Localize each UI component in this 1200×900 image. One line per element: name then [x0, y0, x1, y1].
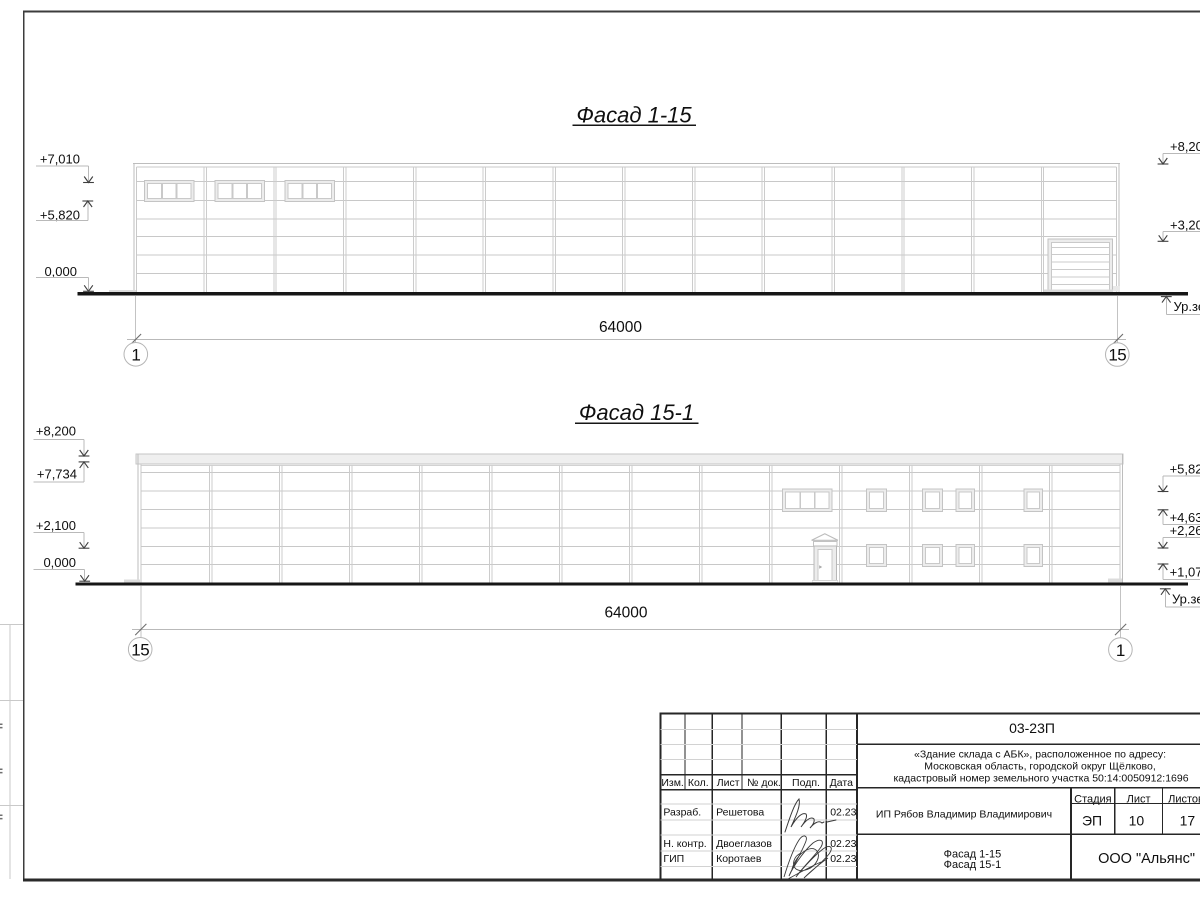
svg-text:ИП Рябов Владимир Владимирович: ИП Рябов Владимир Владимирович	[876, 809, 1052, 821]
svg-text:Лист: Лист	[1127, 793, 1151, 805]
svg-text:№ док.: № док.	[747, 777, 781, 789]
svg-text:Разраб.: Разраб.	[663, 807, 701, 819]
svg-text:02.23: 02.23	[830, 807, 856, 819]
svg-text:Решетова: Решетова	[716, 807, 764, 819]
svg-text:64000: 64000	[599, 319, 642, 336]
svg-text:+8,200: +8,200	[1170, 139, 1200, 154]
svg-text:Стадия: Стадия	[1074, 793, 1112, 805]
svg-text:15: 15	[131, 641, 149, 660]
svg-text:Ур.земли: Ур.земли	[1174, 299, 1200, 314]
svg-text:Изм.: Изм.	[661, 777, 684, 789]
svg-text:64000: 64000	[604, 605, 647, 622]
svg-text:Коротаев: Коротаев	[716, 853, 762, 865]
svg-text:17: 17	[1180, 812, 1196, 828]
svg-text:0,000: 0,000	[44, 264, 77, 279]
svg-text:02.23: 02.23	[830, 853, 856, 865]
svg-text:Н. контр.: Н. контр.	[663, 838, 706, 850]
svg-text:15: 15	[1108, 346, 1126, 365]
svg-text:«Здание склада с АБК», располо: «Здание склада с АБК», расположенное по …	[914, 748, 1166, 760]
svg-text:Фасад 1-15: Фасад 1-15	[576, 102, 692, 127]
svg-text:Лист: Лист	[717, 777, 740, 789]
svg-text:+2,260: +2,260	[1170, 523, 1200, 538]
svg-text:Подп.: Подп.	[792, 777, 820, 789]
svg-text:02.23: 02.23	[830, 838, 856, 850]
svg-text:Дата: Дата	[830, 777, 853, 789]
svg-text:ГИП: ГИП	[663, 853, 684, 865]
svg-text:ЭП: ЭП	[1082, 812, 1102, 828]
svg-text:10: 10	[1129, 812, 1145, 828]
svg-text:Фасад 15-1: Фасад 15-1	[944, 859, 1002, 871]
svg-text:1: 1	[1116, 641, 1125, 660]
svg-text:+2,100: +2,100	[36, 518, 76, 533]
svg-text:03-23П: 03-23П	[1009, 720, 1055, 736]
svg-text:Кол.: Кол.	[688, 777, 709, 789]
svg-text:+5,820: +5,820	[1170, 461, 1200, 476]
svg-text:0,000: 0,000	[43, 555, 76, 570]
svg-text:Листов: Листов	[1168, 793, 1200, 805]
svg-text:Двоеглазов: Двоеглазов	[716, 838, 772, 850]
svg-text:Фасад 15-1: Фасад 15-1	[579, 400, 694, 425]
svg-text:кадастровый номер земельного у: кадастровый номер земельного участка 50:…	[893, 772, 1188, 784]
svg-text:+1,070: +1,070	[1170, 564, 1200, 579]
svg-text:+7,734: +7,734	[37, 467, 77, 482]
svg-text:1: 1	[131, 346, 140, 365]
svg-text:+3,200: +3,200	[1170, 217, 1200, 232]
svg-text:Ур.земли: Ур.земли	[1172, 591, 1200, 606]
svg-text:Московская область, городской: Московская область, городской округ Щёлк…	[924, 761, 1156, 773]
svg-text:+8,200: +8,200	[36, 424, 76, 439]
svg-text:ООО "Альянс": ООО "Альянс"	[1098, 851, 1195, 867]
svg-text:+7,010: +7,010	[40, 152, 80, 167]
